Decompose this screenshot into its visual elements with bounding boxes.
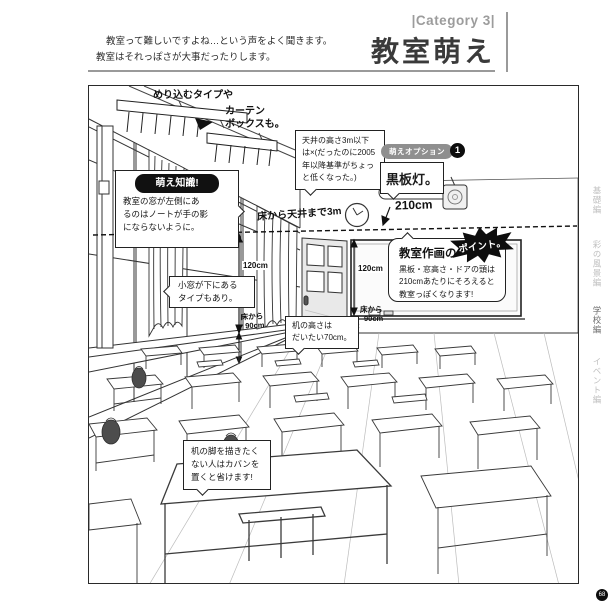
blackboard-light-label-box: 黒板灯。 — [380, 162, 444, 194]
sidebar-tab-school: 学校編 — [591, 306, 603, 335]
sidebar-tab-basics: 基礎編 — [591, 186, 603, 215]
classroom-illustration-frame: めり込むタイプや カーテン ボックスも。 萌え知識! 教室の窓が左側にあ るのは… — [88, 85, 579, 584]
small-window-box: 小窓が下にある タイプもあり。 — [169, 276, 255, 308]
header-vertical-rule — [506, 12, 508, 72]
page-title: 教室萌え — [280, 30, 495, 70]
label-window-120cm: 120cm — [242, 261, 269, 270]
page-header: |Category 3| 教室萌え — [280, 13, 495, 70]
label-board-90cm: 床から 90cm — [360, 305, 383, 324]
desks — [89, 344, 553, 583]
sidebar-tab-scenery: 彩の風景編 — [591, 240, 603, 288]
option-number-badge: 1 — [450, 143, 465, 158]
header-rule — [88, 70, 495, 72]
curtain-box-label: カーテン ボックスも。 — [225, 106, 285, 131]
desk-height-box: 机の高さは だいたい70cm。 — [285, 316, 359, 349]
category-label: |Category 3| — [280, 13, 495, 28]
book-page: { "header": { "category": "|Category 3|"… — [0, 0, 610, 610]
wall-speaker — [443, 185, 467, 209]
moe-option-badge: 萌えオプション 1 — [381, 144, 465, 159]
sidebar-tab-event: イベント編 — [591, 357, 603, 405]
label-board-120cm: 120cm — [357, 264, 384, 273]
wall-clock — [346, 204, 369, 227]
moe-knowledge-badge: 萌え知識! — [135, 174, 219, 193]
desk-legs-box: 机の脚を描きたく ない人はカバンを 置くと省けます! — [183, 440, 271, 490]
label-window-90cm: 床から 90cm — [241, 311, 265, 331]
ceiling-note-box: 天井の高さ3m以下 は×(だったのに2005 年以降基準がちょっ と低くなった。… — [295, 130, 385, 190]
page-number-badge: 68 — [596, 589, 608, 601]
point-title: 教室作画の — [399, 245, 457, 261]
label-210cm: 210cm — [395, 197, 433, 212]
classroom-point-box: 教室作画の ポイント。 黒板・窓高さ・ドアの頭は 210cmあたりにそろえると … — [388, 238, 506, 302]
curtain-type-label: めり込むタイプや — [153, 90, 233, 103]
wall-pillar — [97, 126, 113, 348]
moe-knowledge-box: 萌え知識! 教室の窓が左側にあ るのはノートが手の影 にならないように。 — [115, 170, 239, 248]
